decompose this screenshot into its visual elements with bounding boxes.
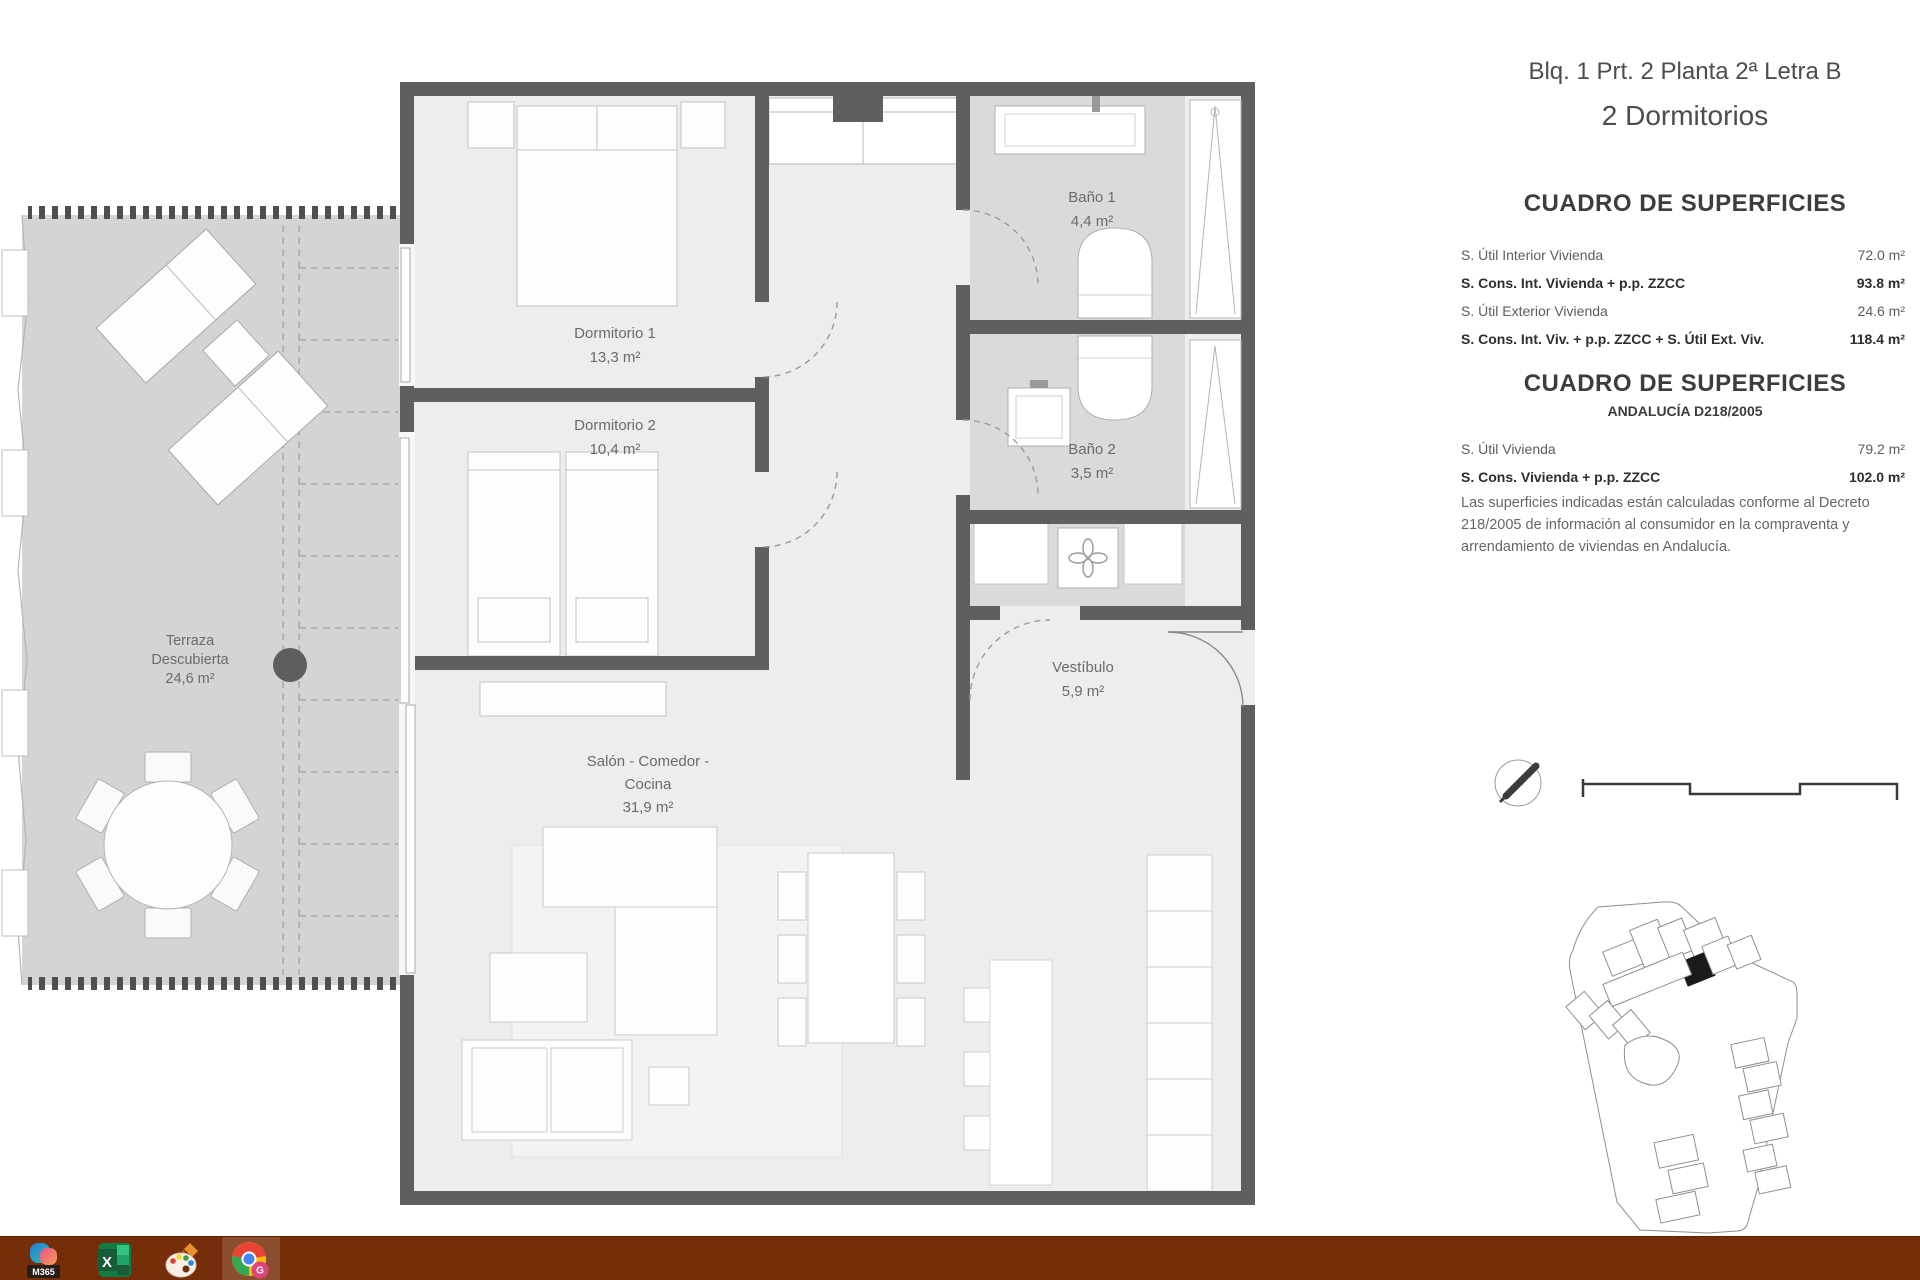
room-label-bano2: Baño 2 3,5 m²: [1068, 438, 1116, 486]
scale-bar: [1583, 779, 1897, 800]
svg-text:M365: M365: [32, 1267, 55, 1277]
surfaces-heading: CUADRO DE SUPERFICIES: [1455, 190, 1915, 218]
surface-row: S. Cons. Vivienda + p.p. ZZCC 102.0 m²: [1461, 468, 1905, 486]
north-compass-icon: [1495, 760, 1541, 806]
room-label-dormitorio1: Dormitorio 1 13,3 m²: [574, 322, 656, 370]
plan-subtitle: 2 Dormitorios: [1455, 100, 1915, 132]
surfaces-heading-andalucia: CUADRO DE SUPERFICIES: [1455, 370, 1915, 398]
room-label-terraza: Terraza Descubierta 24,6 m²: [151, 632, 228, 689]
svg-text:G: G: [256, 1266, 264, 1277]
svg-text:X: X: [102, 1254, 112, 1271]
surface-row: S. Útil Interior Vivienda 72.0 m²: [1461, 246, 1905, 264]
room-label-bano1: Baño 1 4,4 m²: [1068, 186, 1116, 234]
surface-row: S. Cons. Int. Viv. + p.p. ZZCC + S. Útil…: [1461, 330, 1905, 348]
desktop-screen: Dormitorio 1 13,3 m² Dormitorio 2 10,4 m…: [0, 0, 1920, 1280]
paint-app-icon[interactable]: [162, 1240, 202, 1280]
kitchen-cabinets: [1147, 855, 1212, 1191]
surface-row: S. Útil Vivienda 79.2 m²: [1461, 440, 1905, 458]
terrace-hatch-top: [28, 206, 400, 219]
terrace-column: [273, 648, 307, 682]
surfaces-subheading: ANDALUCÍA D218/2005: [1455, 403, 1915, 419]
surface-row: S. Cons. Int. Vivienda + p.p. ZZCC 93.8 …: [1461, 274, 1905, 292]
laundry-washer: [974, 520, 1182, 588]
terrace-hatch-bottom: [28, 977, 400, 990]
legal-disclaimer: Las superficies indicadas están calculad…: [1461, 492, 1913, 558]
excel-app-icon[interactable]: X: [95, 1240, 135, 1280]
site-plan-map: [1566, 889, 1803, 1233]
room-label-dormitorio2: Dormitorio 2 10,4 m²: [574, 414, 656, 462]
facade-windows: [399, 244, 415, 975]
room-label-vestibulo: Vestíbulo 5,9 m²: [1052, 656, 1114, 704]
taskbar: M365 X: [0, 1236, 1920, 1280]
window-shafts: [1190, 100, 1241, 508]
chrome-app-icon[interactable]: G: [230, 1240, 270, 1280]
room-label-salon: Salón - Comedor - Cocina 31,9 m²: [587, 750, 710, 819]
dining-table-set: [778, 853, 925, 1046]
plan-title: Blq. 1 Prt. 2 Planta 2ª Letra B: [1455, 58, 1915, 86]
terrace-area: [0, 206, 400, 990]
surface-row: S. Útil Exterior Vivienda 24.6 m²: [1461, 302, 1905, 320]
m365-app-icon[interactable]: M365: [24, 1240, 64, 1280]
